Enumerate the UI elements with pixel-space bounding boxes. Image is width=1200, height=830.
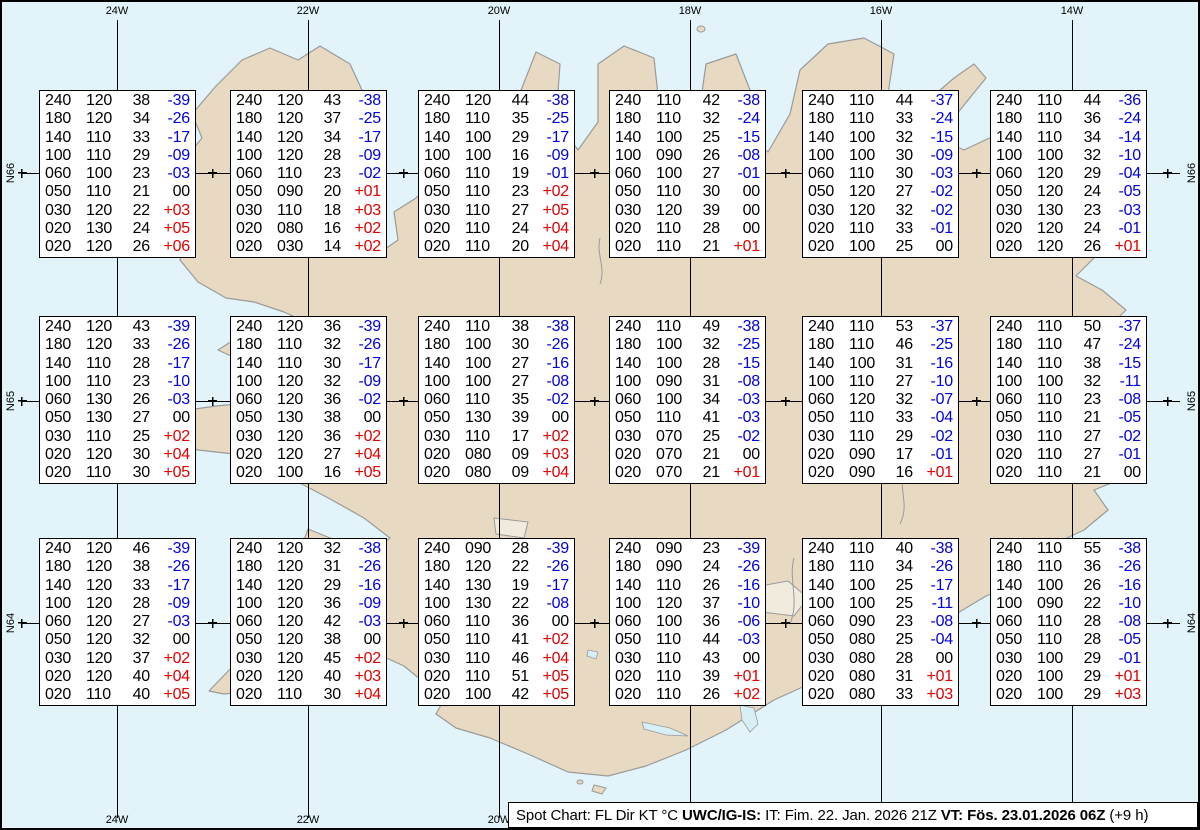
fl-value: 100	[615, 595, 648, 613]
dir-value: 120	[86, 631, 119, 649]
station-box: 24012032-3818012031-2614012029-161001203…	[230, 538, 387, 706]
fl-value: 020	[424, 220, 457, 238]
fl-row: 18011032-24	[615, 110, 760, 128]
temp-value: +05	[529, 202, 569, 220]
fl-row: 24011040-38	[808, 540, 953, 558]
dir-value: 110	[465, 220, 498, 238]
dir-value: 120	[277, 92, 310, 110]
dir-value: 120	[277, 558, 310, 576]
fl-value: 060	[808, 391, 841, 409]
kt-value: 17	[504, 428, 529, 446]
kt-value: 43	[316, 92, 341, 110]
kt-value: 42	[695, 92, 720, 110]
fl-row: 24011049-38	[615, 318, 760, 336]
temp-value: -39	[529, 540, 569, 558]
temp-value: -24	[1101, 336, 1141, 354]
kt-value: 38	[125, 92, 150, 110]
dir-value: 120	[849, 183, 882, 201]
fl-value: 240	[236, 318, 269, 336]
temp-value: -02	[341, 391, 381, 409]
dir-value: 100	[1037, 373, 1070, 391]
fl-row: 0301104300	[615, 650, 760, 668]
kt-value: 21	[1076, 464, 1101, 482]
fl-value: 140	[424, 577, 457, 595]
temp-value: -08	[1101, 613, 1141, 631]
fl-value: 180	[615, 110, 648, 128]
kt-value: 27	[888, 373, 913, 391]
dir-value: 100	[656, 336, 689, 354]
dir-value: 110	[1037, 428, 1070, 446]
dir-value: 130	[86, 220, 119, 238]
fl-value: 180	[424, 558, 457, 576]
dir-value: 100	[1037, 577, 1070, 595]
temp-value: 00	[150, 183, 190, 201]
dir-value: 120	[86, 650, 119, 668]
temp-value: +01	[720, 464, 760, 482]
temp-value: -06	[720, 613, 760, 631]
temp-value: -11	[1101, 373, 1141, 391]
fl-value: 180	[615, 336, 648, 354]
temp-value: -38	[529, 318, 569, 336]
temp-value: +03	[341, 202, 381, 220]
fl-value: 050	[996, 631, 1029, 649]
fl-value: 020	[808, 446, 841, 464]
fl-value: 020	[45, 220, 78, 238]
dir-value: 130	[465, 409, 498, 427]
kt-value: 31	[316, 558, 341, 576]
fl-row: 0501102100	[45, 183, 190, 201]
temp-value: -17	[913, 577, 953, 595]
dir-value: 110	[849, 220, 882, 238]
fl-value: 020	[236, 446, 269, 464]
station-box: 24012038-3918012034-2614011033-171001102…	[39, 90, 196, 258]
fl-row: 0201102800	[615, 220, 760, 238]
dir-value: 130	[277, 409, 310, 427]
kt-value: 27	[504, 202, 529, 220]
kt-value: 25	[888, 595, 913, 613]
fl-row: 14013019-17	[424, 577, 569, 595]
temp-value: -02	[913, 183, 953, 201]
fl-row: 05012027-02	[808, 183, 953, 201]
fl-row: 02008031+01	[808, 668, 953, 686]
station-box: 24012043-3818012037-2514012034-171001202…	[230, 90, 387, 258]
fl-value: 140	[45, 355, 78, 373]
fl-row: 06013026-03	[45, 391, 190, 409]
temp-value: -08	[1101, 391, 1141, 409]
fl-row: 0301203900	[615, 202, 760, 220]
dir-value: 120	[86, 336, 119, 354]
temp-value: -38	[720, 92, 760, 110]
dir-value: 110	[1037, 318, 1070, 336]
fl-row: 18012022-26	[424, 558, 569, 576]
dir-value: 120	[277, 446, 310, 464]
meridian-label-top: 18W	[679, 5, 702, 18]
fl-row: 02010029+03	[996, 686, 1141, 704]
kt-value: 30	[125, 446, 150, 464]
fl-value: 100	[996, 595, 1029, 613]
kt-value: 32	[1076, 147, 1101, 165]
kt-value: 31	[888, 668, 913, 686]
temp-value: -02	[720, 428, 760, 446]
fl-value: 100	[996, 147, 1029, 165]
kt-value: 29	[1076, 165, 1101, 183]
dir-value: 100	[1037, 147, 1070, 165]
kt-value: 21	[695, 238, 720, 256]
fl-row: 03011029-02	[808, 428, 953, 446]
kt-value: 38	[316, 631, 341, 649]
dir-value: 100	[465, 373, 498, 391]
fl-row: 02010016+05	[236, 464, 381, 482]
fl-value: 060	[424, 165, 457, 183]
fl-row: 24011050-37	[996, 318, 1141, 336]
fl-value: 100	[236, 147, 269, 165]
kt-value: 36	[695, 613, 720, 631]
fl-value: 100	[996, 373, 1029, 391]
temp-value: -17	[150, 577, 190, 595]
fl-value: 030	[45, 650, 78, 668]
fl-value: 180	[45, 336, 78, 354]
dir-value: 100	[656, 391, 689, 409]
fl-row: 14010029-17	[424, 129, 569, 147]
fl-value: 060	[236, 165, 269, 183]
kt-value: 20	[504, 238, 529, 256]
temp-value: -10	[1101, 147, 1141, 165]
fl-row: 24011053-37	[808, 318, 953, 336]
dir-value: 110	[1037, 613, 1070, 631]
fl-value: 020	[236, 238, 269, 256]
temp-value: -08	[720, 373, 760, 391]
kt-value: 27	[1076, 446, 1101, 464]
temp-value: 00	[913, 238, 953, 256]
fl-value: 020	[45, 686, 78, 704]
kt-value: 24	[1076, 220, 1101, 238]
kt-value: 46	[504, 650, 529, 668]
temp-value: -15	[720, 129, 760, 147]
fl-row: 02012040+03	[236, 668, 381, 686]
station-box: 24012043-3918012033-2614011028-171001102…	[39, 316, 196, 484]
dir-value: 100	[277, 464, 310, 482]
station-box: 24012044-3818011035-2514010029-171001001…	[418, 90, 575, 258]
kt-value: 25	[695, 129, 720, 147]
dir-value: 110	[465, 183, 498, 201]
dir-value: 110	[1037, 110, 1070, 128]
kt-value: 55	[1076, 540, 1101, 558]
temp-value: -09	[150, 147, 190, 165]
fl-value: 050	[45, 631, 78, 649]
fl-value: 100	[424, 147, 457, 165]
fl-row: 03012022+03	[45, 202, 190, 220]
dir-value: 120	[86, 110, 119, 128]
dir-value: 100	[849, 595, 882, 613]
fl-value: 020	[236, 464, 269, 482]
dir-value: 120	[1037, 165, 1070, 183]
fl-value: 240	[45, 318, 78, 336]
fl-value: 020	[424, 686, 457, 704]
temp-value: -05	[1101, 409, 1141, 427]
dir-value: 100	[465, 129, 498, 147]
dir-value: 100	[465, 336, 498, 354]
dir-value: 120	[277, 613, 310, 631]
temp-value: -03	[913, 165, 953, 183]
fl-value: 020	[45, 238, 78, 256]
temp-value: +03	[913, 686, 953, 704]
fl-value: 240	[808, 540, 841, 558]
kt-value: 22	[504, 558, 529, 576]
graticule-tick	[399, 169, 408, 178]
kt-value: 21	[1076, 409, 1101, 427]
status-segment: IT: Fim. 22. Jan. 2026 21Z	[761, 807, 941, 824]
kt-value: 27	[504, 373, 529, 391]
kt-value: 43	[695, 650, 720, 668]
kt-value: 25	[888, 577, 913, 595]
fl-value: 020	[808, 238, 841, 256]
graticule-tick	[972, 619, 981, 628]
parallel-label-right: N65	[1186, 391, 1198, 411]
kt-value: 27	[1076, 428, 1101, 446]
fl-row: 03007025-02	[615, 428, 760, 446]
fl-row: 14010027-16	[424, 355, 569, 373]
dir-value: 070	[656, 464, 689, 482]
temp-value: -16	[913, 355, 953, 373]
dir-value: 130	[465, 595, 498, 613]
dir-value: 110	[656, 238, 689, 256]
fl-value: 100	[236, 595, 269, 613]
fl-value: 240	[45, 540, 78, 558]
station-box: 24011038-3818010030-2614010027-161001002…	[418, 316, 575, 484]
temp-value: -03	[150, 391, 190, 409]
fl-value: 030	[236, 202, 269, 220]
fl-row: 24012043-38	[236, 92, 381, 110]
kt-value: 29	[316, 577, 341, 595]
kt-value: 34	[695, 391, 720, 409]
parallel-label-right: N66	[1186, 163, 1198, 183]
fl-row: 14010025-15	[615, 129, 760, 147]
parallel-label-right: N64	[1186, 613, 1198, 633]
kt-value: 09	[504, 446, 529, 464]
temp-value: 00	[150, 409, 190, 427]
temp-value: -17	[529, 129, 569, 147]
meridian-label-bottom: 20W	[488, 814, 511, 827]
dir-value: 110	[656, 631, 689, 649]
temp-value: +04	[150, 668, 190, 686]
kt-value: 23	[888, 613, 913, 631]
fl-value: 140	[615, 355, 648, 373]
fl-value: 140	[808, 129, 841, 147]
fl-row: 18011046-25	[808, 336, 953, 354]
fl-value: 050	[808, 183, 841, 201]
temp-value: +02	[529, 183, 569, 201]
fl-row: 24011038-38	[424, 318, 569, 336]
fl-row: 05012024-05	[996, 183, 1141, 201]
kt-value: 32	[1076, 373, 1101, 391]
temp-value: +01	[341, 183, 381, 201]
station-box: 24011053-3718011046-2514010031-161001102…	[802, 316, 959, 484]
fl-row: 18011033-24	[808, 110, 953, 128]
fl-row: 05011021-05	[996, 409, 1141, 427]
fl-row: 24012038-39	[45, 92, 190, 110]
kt-value: 39	[695, 202, 720, 220]
kt-value: 32	[695, 336, 720, 354]
temp-value: -03	[341, 613, 381, 631]
kt-value: 28	[1076, 631, 1101, 649]
fl-row: 02007021+01	[615, 464, 760, 482]
fl-value: 020	[615, 668, 648, 686]
dir-value: 120	[277, 540, 310, 558]
kt-value: 40	[125, 686, 150, 704]
dir-value: 110	[656, 686, 689, 704]
fl-value: 240	[236, 540, 269, 558]
fl-row: 18012034-26	[45, 110, 190, 128]
kt-value: 24	[504, 220, 529, 238]
fl-row: 05011044-03	[615, 631, 760, 649]
fl-row: 0501303800	[236, 409, 381, 427]
kt-value: 09	[504, 464, 529, 482]
dir-value: 110	[277, 336, 310, 354]
fl-row: 06010023-03	[45, 165, 190, 183]
fl-value: 180	[236, 336, 269, 354]
dir-value: 120	[1037, 183, 1070, 201]
dir-value: 130	[86, 391, 119, 409]
parallel-label-left: N65	[5, 391, 17, 411]
fl-row: 10010032-11	[996, 373, 1141, 391]
fl-value: 030	[424, 202, 457, 220]
dir-value: 110	[849, 428, 882, 446]
dir-value: 080	[849, 686, 882, 704]
dir-value: 110	[465, 668, 498, 686]
kt-value: 34	[1076, 129, 1101, 147]
temp-value: -10	[150, 373, 190, 391]
dir-value: 120	[86, 446, 119, 464]
temp-value: +02	[341, 220, 381, 238]
fl-value: 030	[615, 428, 648, 446]
temp-value: -24	[1101, 110, 1141, 128]
temp-value: -17	[529, 577, 569, 595]
dir-value: 120	[277, 391, 310, 409]
temp-value: -17	[341, 355, 381, 373]
dir-value: 110	[1037, 631, 1070, 649]
fl-value: 030	[236, 650, 269, 668]
fl-value: 060	[45, 613, 78, 631]
dir-value: 120	[277, 428, 310, 446]
temp-value: +02	[529, 428, 569, 446]
kt-value: 29	[1076, 650, 1101, 668]
dir-value: 100	[1037, 668, 1070, 686]
dir-value: 110	[86, 147, 119, 165]
dir-value: 110	[849, 110, 882, 128]
fl-value: 050	[615, 631, 648, 649]
fl-value: 020	[996, 238, 1029, 256]
fl-value: 140	[424, 129, 457, 147]
temp-value: -02	[529, 391, 569, 409]
dir-value: 120	[465, 92, 498, 110]
dir-value: 080	[277, 220, 310, 238]
fl-row: 02012040+04	[45, 668, 190, 686]
temp-value: -39	[150, 318, 190, 336]
fl-value: 240	[236, 92, 269, 110]
dir-value: 120	[277, 147, 310, 165]
dir-value: 110	[656, 183, 689, 201]
fl-row: 14012033-17	[45, 577, 190, 595]
dir-value: 120	[1037, 220, 1070, 238]
fl-row: 02011051+05	[424, 668, 569, 686]
fl-value: 050	[45, 409, 78, 427]
dir-value: 110	[849, 558, 882, 576]
dir-value: 110	[465, 650, 498, 668]
kt-value: 30	[888, 147, 913, 165]
fl-value: 030	[424, 428, 457, 446]
temp-value: +04	[529, 650, 569, 668]
fl-value: 060	[424, 391, 457, 409]
kt-value: 23	[504, 183, 529, 201]
dir-value: 120	[277, 129, 310, 147]
fl-value: 240	[808, 92, 841, 110]
temp-value: +01	[913, 464, 953, 482]
fl-row: 03011046+04	[424, 650, 569, 668]
kt-value: 37	[125, 650, 150, 668]
temp-value: -03	[720, 391, 760, 409]
fl-row: 18011035-25	[424, 110, 569, 128]
status-segment: UWC/IG-IS:	[682, 807, 761, 824]
meridian-label-top: 20W	[488, 5, 511, 18]
station-box: 24009023-3918009024-2614011026-161001203…	[609, 538, 766, 706]
temp-value: -09	[150, 595, 190, 613]
fl-row: 14011033-17	[45, 129, 190, 147]
dir-value: 110	[656, 668, 689, 686]
kt-value: 26	[125, 391, 150, 409]
kt-value: 31	[888, 355, 913, 373]
dir-value: 120	[656, 595, 689, 613]
temp-value: -38	[913, 540, 953, 558]
temp-value: +04	[150, 446, 190, 464]
kt-value: 38	[125, 558, 150, 576]
kt-value: 25	[695, 428, 720, 446]
graticule-tick	[18, 169, 27, 178]
kt-value: 29	[888, 428, 913, 446]
fl-value: 020	[996, 668, 1029, 686]
fl-row: 03011018+03	[236, 202, 381, 220]
fl-row: 02013024+05	[45, 220, 190, 238]
fl-row: 05011028-05	[996, 631, 1141, 649]
dir-value: 100	[656, 165, 689, 183]
fl-row: 05011041+02	[424, 631, 569, 649]
dir-value: 110	[86, 373, 119, 391]
temp-value: -38	[341, 540, 381, 558]
graticule-tick	[590, 619, 599, 628]
fl-value: 240	[996, 92, 1029, 110]
temp-value: -17	[341, 129, 381, 147]
fl-value: 180	[424, 110, 457, 128]
fl-row: 02011030+05	[45, 464, 190, 482]
fl-row: 02010042+05	[424, 686, 569, 704]
dir-value: 110	[849, 409, 882, 427]
fl-value: 050	[236, 409, 269, 427]
temp-value: -02	[913, 202, 953, 220]
dir-value: 110	[465, 238, 498, 256]
temp-value: -16	[529, 355, 569, 373]
fl-row: 03010029-01	[996, 650, 1141, 668]
fl-value: 140	[996, 355, 1029, 373]
kt-value: 24	[125, 220, 150, 238]
fl-value: 020	[615, 464, 648, 482]
temp-value: -39	[341, 318, 381, 336]
graticule-tick	[972, 169, 981, 178]
fl-row: 10012032-09	[236, 373, 381, 391]
temp-value: 00	[1101, 464, 1141, 482]
fl-value: 240	[424, 318, 457, 336]
kt-value: 53	[888, 318, 913, 336]
fl-value: 100	[424, 595, 457, 613]
fl-row: 06012036-02	[236, 391, 381, 409]
